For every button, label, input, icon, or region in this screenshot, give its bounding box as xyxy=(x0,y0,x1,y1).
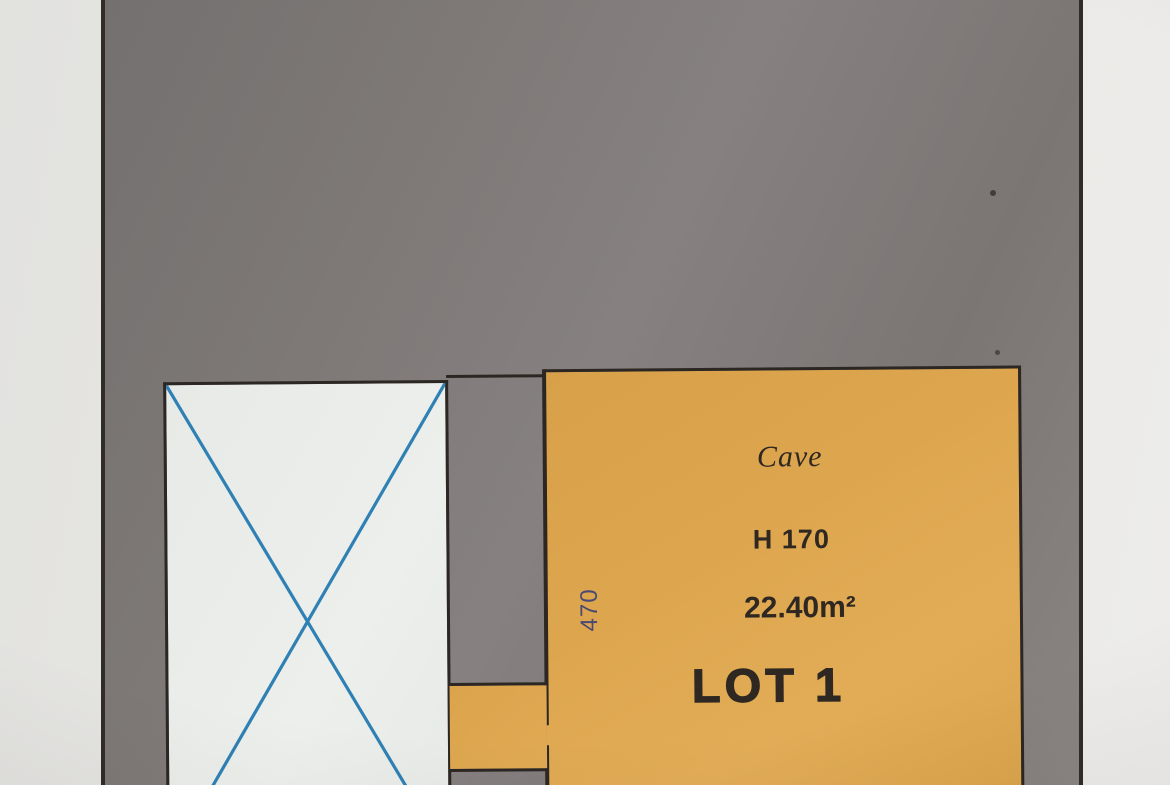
cross-out-icon xyxy=(166,383,449,785)
wall-dimension-label: 470 xyxy=(577,575,604,645)
wall-segment-top xyxy=(446,374,547,378)
cave-room: Cave H 170 22.40m² LOT 1 xyxy=(544,365,1024,785)
scan-speck xyxy=(995,350,1000,355)
entry-passage xyxy=(449,682,547,772)
lot-number-label: LOT 1 xyxy=(531,660,1005,711)
room-name-label: Cave xyxy=(553,440,1027,474)
void-area xyxy=(163,380,452,785)
plan-features: Cave H 170 22.40m² LOT 1 470 xyxy=(0,0,1170,785)
scan-speck xyxy=(990,190,996,196)
area-label: 22.40m² xyxy=(563,591,1037,625)
ceiling-height-label: H 170 xyxy=(554,524,1028,555)
scanned-floor-plan-page: Cave H 170 22.40m² LOT 1 470 xyxy=(0,0,1170,785)
